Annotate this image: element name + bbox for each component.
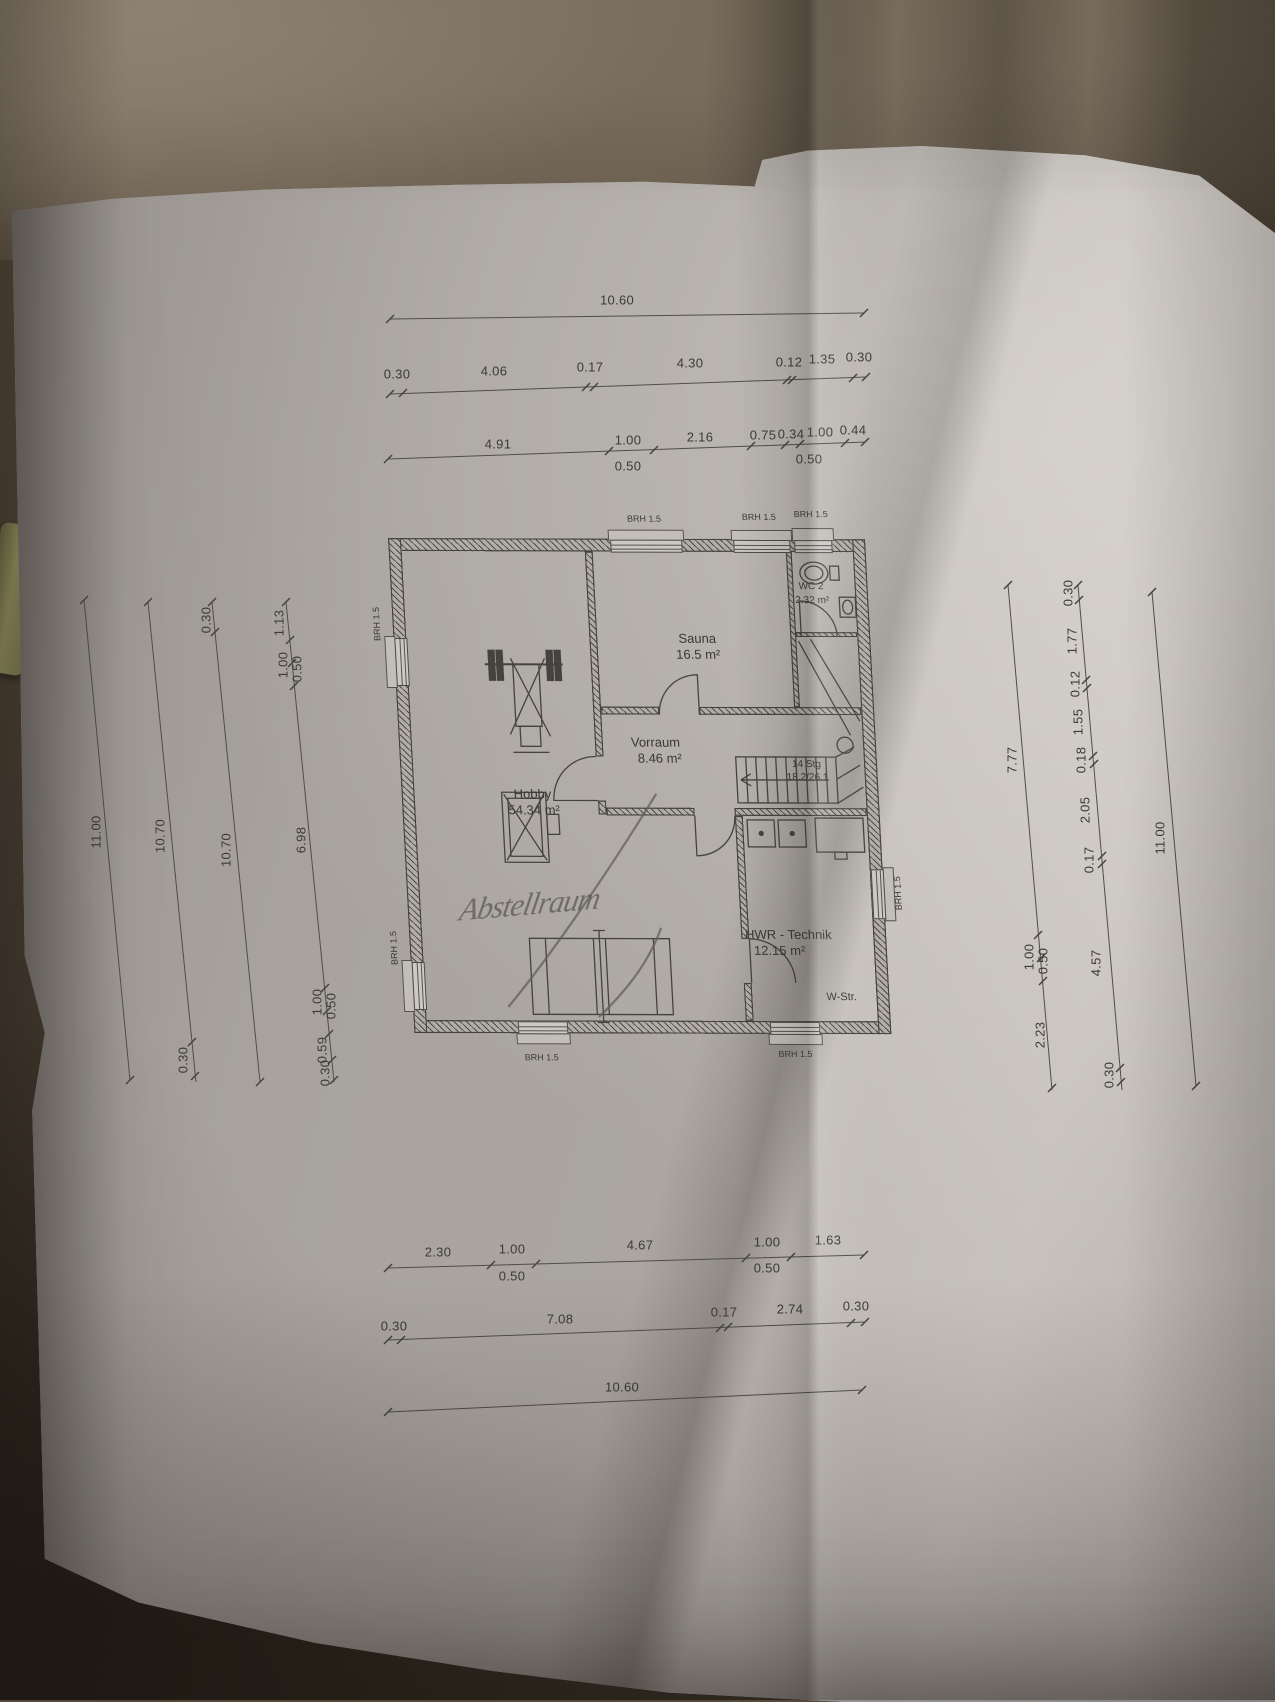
- dim-label: 0.30: [1102, 1062, 1117, 1089]
- dim-label: 0.50: [290, 656, 305, 683]
- dim-label: 1.00: [807, 425, 834, 440]
- dim-label: 0.17: [1082, 847, 1097, 874]
- dim-label: 1.00: [615, 433, 642, 448]
- dim-label: 0.18: [1074, 747, 1089, 774]
- dim-label: 11.00: [89, 815, 104, 848]
- dim-label: 1.35: [809, 352, 836, 367]
- dim-label: 0.50: [499, 1269, 526, 1284]
- dim-label: 1.77: [1065, 628, 1080, 655]
- dim-label: 10.60: [600, 293, 634, 308]
- dim-label: 1.63: [815, 1233, 842, 1248]
- dim-label: 0.30: [176, 1047, 191, 1074]
- dim-label: 0.30: [199, 607, 214, 634]
- dim-label: 2.16: [687, 430, 714, 445]
- dim-label: 0.30: [846, 350, 873, 365]
- dim-label: 10.70: [153, 819, 168, 853]
- dim-label: 0.44: [840, 423, 867, 438]
- dim-label: 0.12: [1068, 671, 1083, 698]
- dim-label: 0.34: [778, 427, 805, 442]
- dim-label: 0.30: [381, 1319, 408, 1334]
- dim-label: 2.74: [777, 1302, 804, 1317]
- dim-label: 6.98: [294, 827, 309, 854]
- dim-label: 2.30: [425, 1245, 452, 1260]
- dim-label: 1.00: [1022, 944, 1037, 971]
- dim-label: 4.30: [677, 356, 704, 371]
- dim-label: 4.06: [481, 364, 508, 379]
- dim-label: 0.17: [577, 360, 604, 375]
- dim-label: 0.12: [776, 355, 803, 370]
- dim-label: 1.00: [499, 1242, 526, 1257]
- dim-label: 0.50: [615, 459, 642, 474]
- floor-plan-photo: { "rooms": [ {"name": "Sauna", "area": "…: [0, 0, 1275, 1700]
- dim-label: 2.05: [1078, 797, 1093, 824]
- dim-label: 1.00: [754, 1235, 781, 1250]
- dim-label: 0.30: [843, 1299, 870, 1314]
- dim-label: 0.30: [318, 1060, 333, 1087]
- dim-label: 4.91: [485, 437, 512, 452]
- dim-label: 2.23: [1033, 1022, 1048, 1049]
- dim-label: 0.50: [324, 993, 339, 1020]
- dim-label: 4.67: [627, 1238, 654, 1253]
- dim-label: 0.30: [384, 367, 411, 382]
- dim-label: 10.60: [605, 1380, 639, 1395]
- dim-label: 1.00: [310, 989, 325, 1016]
- dim-label: 0.50: [796, 452, 823, 467]
- dim-label: 0.50: [754, 1261, 781, 1276]
- dim-label: 0.75: [750, 428, 777, 443]
- dim-label: 0.17: [711, 1305, 738, 1320]
- dim-label: 7.08: [547, 1312, 574, 1327]
- dim-label: 0.30: [1061, 580, 1076, 607]
- dim-label: 11.00: [1153, 821, 1168, 854]
- dim-label: 10.70: [219, 833, 234, 867]
- dim-label: 1.13: [272, 610, 287, 637]
- dim-label: 1.55: [1071, 709, 1086, 736]
- dim-label: 0.50: [1036, 948, 1051, 975]
- dim-label: 7.77: [1005, 747, 1020, 774]
- dim-label: 4.57: [1089, 950, 1104, 977]
- dim-label: 1.00: [276, 652, 291, 679]
